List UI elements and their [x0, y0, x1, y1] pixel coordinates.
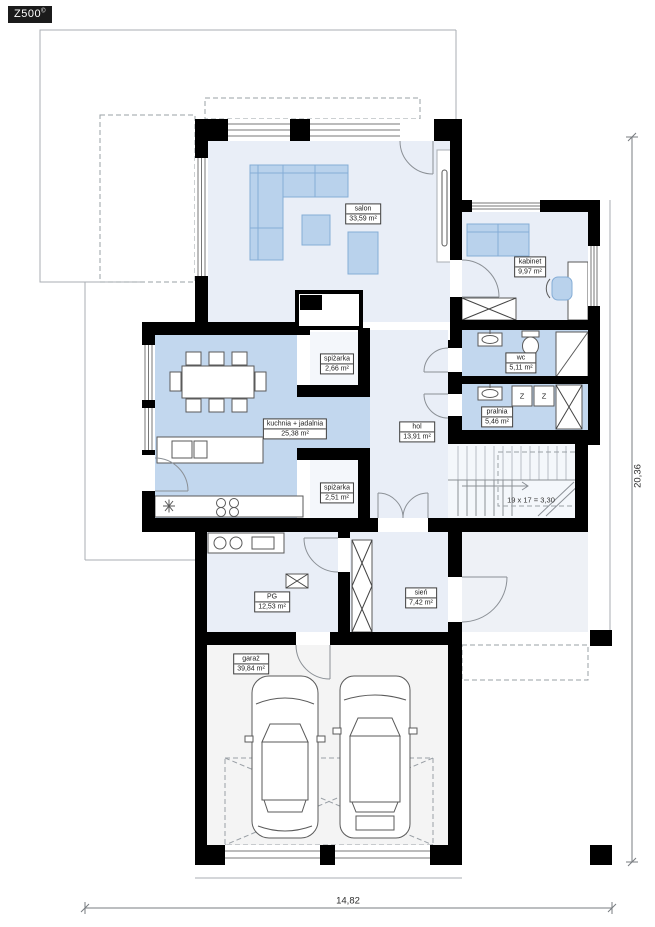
room-name: spiżarka [321, 483, 353, 493]
brand-logo-mark: © [41, 8, 46, 14]
room-name: spiżarka [321, 354, 353, 364]
brand-logo: Z500© [8, 6, 52, 23]
window-icon [142, 408, 155, 450]
room-area: 5,11 m² [506, 364, 535, 373]
car-1 [245, 676, 325, 838]
room-area: 25,38 m² [264, 430, 326, 439]
toilet-icon [522, 331, 539, 337]
room-area: 33,59 m² [346, 215, 380, 224]
car-mirror-icon [245, 736, 253, 742]
room-label-kabinet: kabinet 9,97 m² [514, 256, 546, 277]
window-icon [142, 345, 155, 400]
room-name: garaż [234, 654, 268, 664]
room-name: hol [400, 422, 434, 432]
window-icon [195, 158, 208, 276]
porch-pillar [590, 845, 612, 865]
chair-icon [209, 399, 224, 412]
garage-floor [207, 645, 448, 845]
floor-plan-canvas [0, 0, 655, 927]
room-area: 39,84 m² [234, 665, 268, 674]
chair-icon [255, 372, 266, 391]
ottoman-icon [302, 215, 330, 245]
dining-table-icon [182, 366, 254, 398]
chair-icon [186, 352, 201, 365]
window-icon [228, 119, 290, 141]
desk-chair-icon [552, 277, 572, 300]
stairs-note: 19 x 17 = 3,30 [507, 496, 555, 505]
room-area: 9,97 m² [515, 268, 545, 277]
room-label-spizarka-1: spiżarka 2,66 m² [320, 353, 354, 374]
room-label-pg: PG 12,53 m² [254, 591, 290, 612]
room-name: PG [255, 592, 289, 602]
chair-icon [232, 399, 247, 412]
car-2 [333, 676, 417, 838]
room-label-wc: wc 5,11 m² [505, 352, 536, 373]
room-label-pralnia: pralnia 5,46 m² [481, 406, 513, 427]
chair-icon [209, 352, 224, 365]
window-icon [472, 200, 540, 212]
room-area: 2,66 m² [321, 365, 353, 374]
utility-counter-icon [208, 533, 284, 553]
kitchen-counter-icon [155, 496, 303, 517]
room-label-spizarka-2: spiżarka 2,51 m² [320, 482, 354, 503]
room-name: pralnia [482, 407, 512, 417]
appliance-star-icon [163, 500, 175, 513]
washer-label: Z [520, 392, 525, 401]
room-label-hol: hol 13,91 m² [399, 421, 435, 442]
room-label-kuchnia: kuchnia + jadalnia 25,38 m² [263, 418, 327, 439]
dimension-height: 20,36 [633, 461, 644, 491]
car-mirror-icon [317, 736, 325, 742]
room-area: 13,91 m² [400, 433, 434, 442]
dryer-label: Z [542, 392, 547, 401]
chair-icon [232, 352, 247, 365]
sien-furniture [352, 540, 372, 632]
garage-door-icon [225, 845, 320, 865]
wardrobe-icon [352, 540, 372, 632]
sink-icon [172, 441, 192, 458]
brand-logo-text: Z500 [14, 8, 41, 20]
room-area: 2,51 m² [321, 494, 353, 503]
room-area: 5,46 m² [482, 418, 512, 427]
porch-pillar [590, 630, 612, 646]
car-mirror-icon [333, 728, 341, 734]
dimension-width: 14,82 [333, 896, 363, 907]
room-name: salon [346, 204, 380, 214]
window-icon [310, 119, 413, 141]
porch-floor [462, 532, 588, 632]
room-area: 12,53 m² [255, 603, 289, 612]
room-name: wc [506, 353, 535, 363]
room-name: kabinet [515, 257, 545, 267]
car-mirror-icon [409, 728, 417, 734]
room-label-sien: sień 7,42 m² [405, 587, 437, 608]
room-area: 7,42 m² [406, 599, 436, 608]
room-name: kuchnia + jadalnia [264, 419, 326, 429]
chair-icon [170, 372, 181, 391]
window-icon [588, 246, 600, 306]
floor-plan: Z500© [0, 0, 655, 927]
room-label-garaz: garaż 39,84 m² [233, 653, 269, 674]
chair-icon [186, 399, 201, 412]
garage-door-icon [335, 845, 430, 865]
room-label-salon: salon 33,59 m² [345, 203, 381, 224]
coffee-table-icon [348, 232, 378, 274]
room-name: sień [406, 588, 436, 598]
tv-icon [442, 170, 447, 246]
